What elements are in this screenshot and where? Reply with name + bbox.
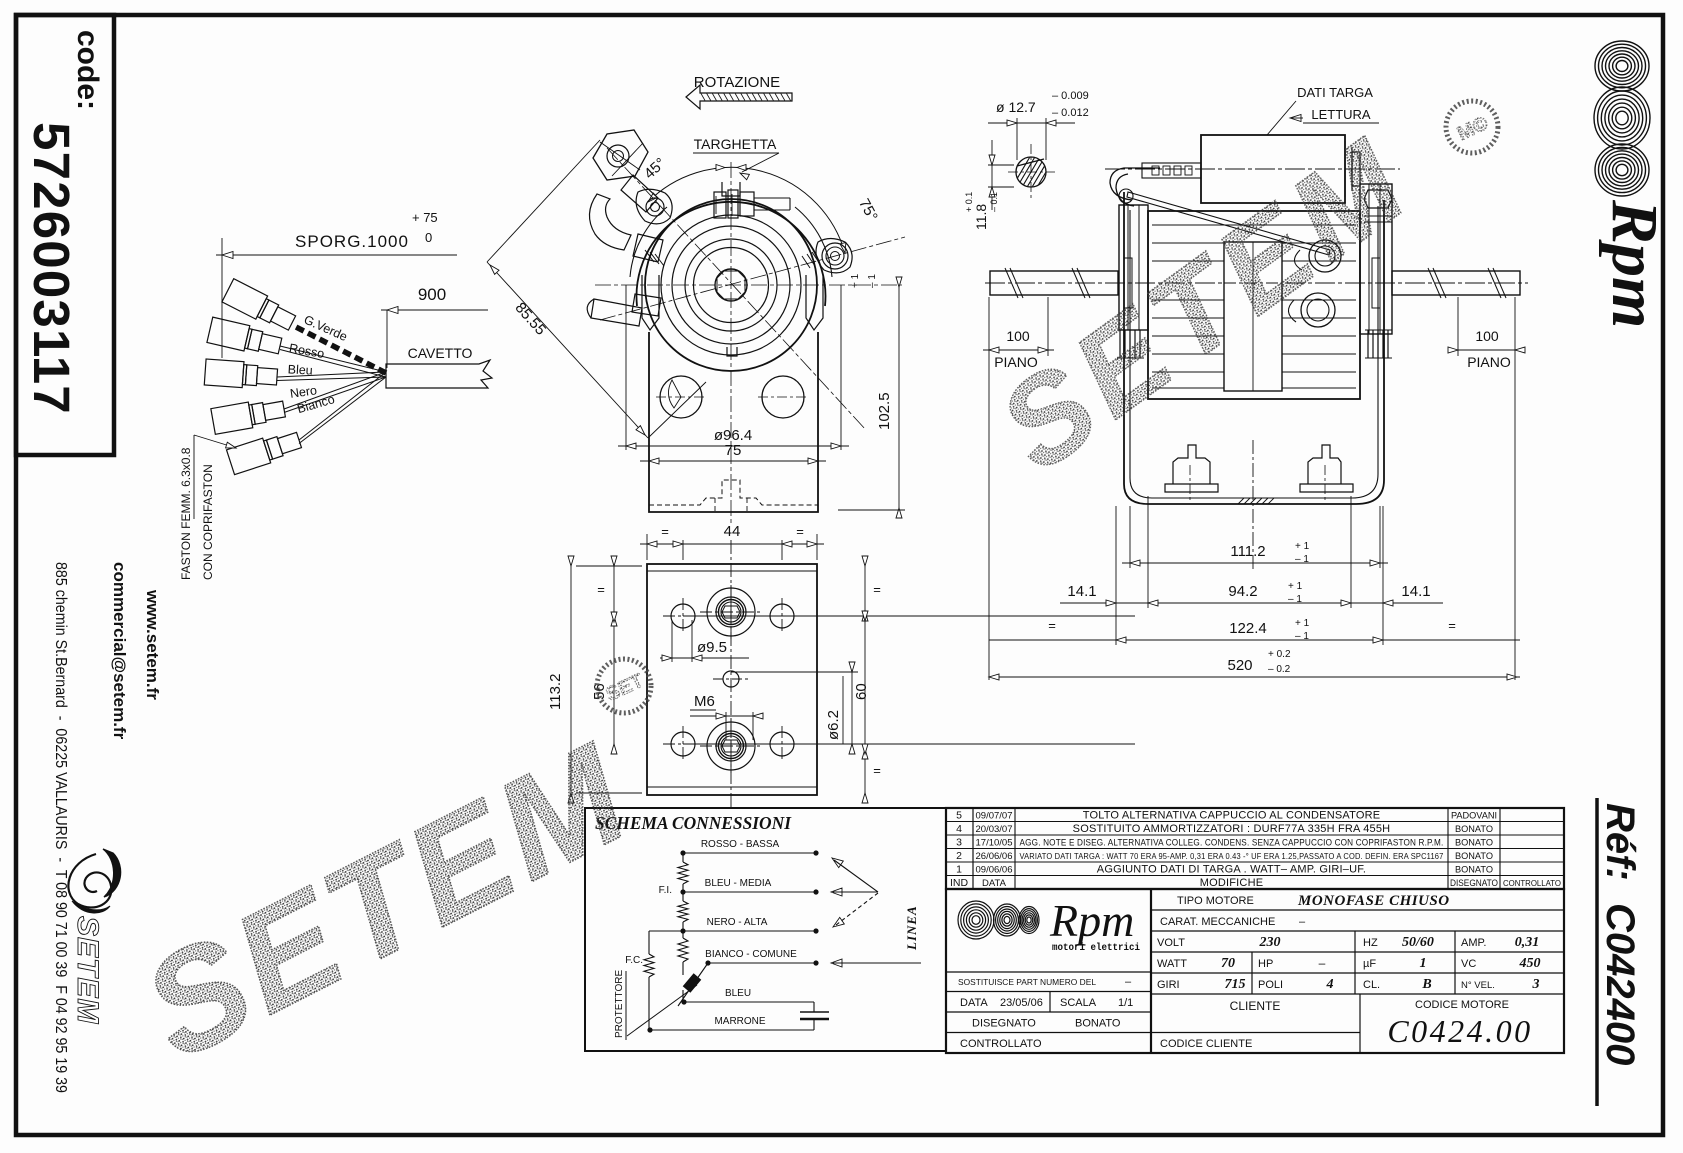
svg-text:DISEGNATO: DISEGNATO bbox=[1450, 878, 1498, 888]
svg-text:M6: M6 bbox=[694, 693, 715, 710]
svg-text:MARRONE: MARRONE bbox=[714, 1016, 765, 1027]
svg-text:122.4: 122.4 bbox=[1229, 620, 1267, 637]
svg-text:1/1: 1/1 bbox=[1118, 997, 1133, 1009]
svg-text:VOLT: VOLT bbox=[1157, 937, 1185, 949]
svg-text:AMP.: AMP. bbox=[1461, 937, 1486, 949]
svg-text:BONATO: BONATO bbox=[1455, 864, 1493, 874]
svg-text:CARAT. MECCANICHE: CARAT. MECCANICHE bbox=[1160, 916, 1275, 928]
svg-text:N° VEL.: N° VEL. bbox=[1461, 980, 1495, 991]
svg-text:102.5: 102.5 bbox=[876, 392, 893, 430]
svg-text:Rpm: Rpm bbox=[1049, 895, 1134, 946]
svg-text:HP: HP bbox=[1258, 958, 1273, 970]
svg-text:44: 44 bbox=[724, 523, 741, 540]
svg-text:DATI TARGA: DATI TARGA bbox=[1297, 85, 1373, 100]
svg-text:CLIENTE: CLIENTE bbox=[1230, 999, 1281, 1013]
svg-text:CODICE MOTORE: CODICE MOTORE bbox=[1415, 999, 1509, 1011]
svg-text:+ 1: + 1 bbox=[1288, 581, 1303, 592]
svg-text:–: – bbox=[1299, 916, 1306, 928]
svg-text:LINEA: LINEA bbox=[904, 905, 919, 951]
svg-text:–: – bbox=[1319, 956, 1326, 970]
svg-text:– 1: – 1 bbox=[1288, 594, 1302, 605]
svg-text:BONATO: BONATO bbox=[1455, 824, 1493, 834]
svg-text:23/05/06: 23/05/06 bbox=[1000, 997, 1043, 1009]
svg-text:C0424.00: C0424.00 bbox=[1387, 1013, 1532, 1049]
svg-text:3: 3 bbox=[956, 836, 962, 848]
svg-text:715: 715 bbox=[1225, 977, 1246, 992]
svg-text:TIPO MOTORE: TIPO MOTORE bbox=[1177, 895, 1254, 907]
svg-text:1: 1 bbox=[1420, 956, 1427, 971]
svg-text:code:: code: bbox=[71, 30, 104, 110]
svg-text:– 0.009: – 0.009 bbox=[1052, 90, 1089, 102]
svg-text:26/06/06: 26/06/06 bbox=[976, 851, 1013, 862]
svg-text:– 0.1: – 0.1 bbox=[989, 192, 999, 212]
svg-text:111.2: 111.2 bbox=[1230, 543, 1265, 560]
svg-text:3: 3 bbox=[1532, 977, 1540, 992]
svg-text:HZ: HZ bbox=[1363, 937, 1378, 949]
svg-text:µF: µF bbox=[1363, 958, 1376, 970]
svg-text:AGG. NOTE E DISEG. ALTERNATIVA: AGG. NOTE E DISEG. ALTERNATIVA COLLEG. C… bbox=[1020, 837, 1444, 848]
svg-text:BONATO: BONATO bbox=[1075, 1018, 1121, 1030]
svg-text:BIANCO - COMUNE: BIANCO - COMUNE bbox=[705, 949, 797, 960]
svg-text:– 1: – 1 bbox=[867, 274, 878, 288]
svg-text:F.C.: F.C. bbox=[625, 955, 643, 966]
svg-text:BLEU - MEDIA: BLEU - MEDIA bbox=[705, 878, 772, 889]
svg-text:60: 60 bbox=[853, 683, 870, 700]
svg-text:5726003117: 5726003117 bbox=[23, 122, 80, 415]
svg-text:FASTON FEMM. 6.3x0.8: FASTON FEMM. 6.3x0.8 bbox=[179, 447, 193, 580]
svg-text:GIRI: GIRI bbox=[1157, 979, 1180, 991]
svg-text:70: 70 bbox=[1221, 956, 1235, 971]
svg-text:IND: IND bbox=[950, 877, 969, 889]
svg-text:ø6.2: ø6.2 bbox=[825, 710, 842, 740]
svg-text:PROTETTORE: PROTETTORE bbox=[614, 970, 625, 1038]
svg-text:ø9.5: ø9.5 bbox=[697, 639, 727, 656]
svg-text:BONATO: BONATO bbox=[1455, 837, 1493, 847]
svg-text:motori elettrici: motori elettrici bbox=[1052, 942, 1140, 954]
svg-text:1: 1 bbox=[956, 863, 962, 875]
svg-text:14.1: 14.1 bbox=[1401, 583, 1430, 600]
svg-text:– 1: – 1 bbox=[1295, 554, 1309, 565]
svg-text:CONTROLLATO: CONTROLLATO bbox=[1503, 878, 1561, 888]
svg-text:SETEM: SETEM bbox=[71, 916, 104, 1024]
svg-text:MODIFICHE: MODIFICHE bbox=[1200, 877, 1264, 889]
svg-text:885 chemin St.Bernard - 0622: 885 chemin St.Bernard - 06225 VALLAURIS … bbox=[52, 562, 69, 1093]
svg-text:commercial@setem.fr: commercial@setem.fr bbox=[110, 562, 129, 740]
svg-text:www.setem.fr: www.setem.fr bbox=[143, 589, 162, 700]
svg-text:94.2: 94.2 bbox=[1228, 583, 1257, 600]
svg-text:CODICE CLIENTE: CODICE CLIENTE bbox=[1160, 1038, 1252, 1050]
svg-text:TOLTO ALTERNATIVA CAPPUCCIO AL: TOLTO ALTERNATIVA CAPPUCCIO AL CONDENSAT… bbox=[1083, 809, 1381, 821]
svg-text:–: – bbox=[1125, 976, 1132, 988]
svg-text:VC: VC bbox=[1461, 958, 1476, 970]
svg-text:=: = bbox=[873, 763, 881, 778]
svg-text:ROTAZIONE: ROTAZIONE bbox=[694, 74, 780, 91]
svg-text:+ 1: + 1 bbox=[1295, 618, 1310, 629]
svg-text:17/10/05: 17/10/05 bbox=[976, 837, 1013, 848]
svg-text:=: = bbox=[597, 582, 605, 597]
svg-text:DATA: DATA bbox=[960, 997, 988, 1009]
svg-text:=: = bbox=[1448, 618, 1456, 633]
svg-text:+ 75: + 75 bbox=[412, 210, 438, 225]
svg-text:=: = bbox=[873, 582, 881, 597]
svg-text:100: 100 bbox=[1006, 328, 1030, 344]
svg-text:113.2: 113.2 bbox=[547, 674, 564, 710]
svg-text:20/03/07: 20/03/07 bbox=[976, 824, 1013, 835]
svg-text:14.1: 14.1 bbox=[1067, 583, 1096, 600]
svg-text:MONOFASE CHIUSO: MONOFASE CHIUSO bbox=[1297, 893, 1450, 909]
svg-text:520: 520 bbox=[1227, 657, 1252, 674]
svg-text:VARIATO DATI TARGA : WATT 70 E: VARIATO DATI TARGA : WATT 70 ERA 95-AMP.… bbox=[1020, 852, 1444, 861]
svg-text:POLI: POLI bbox=[1258, 979, 1283, 991]
svg-text:SCALA: SCALA bbox=[1060, 997, 1097, 1009]
svg-text:NERO - ALTA: NERO - ALTA bbox=[707, 917, 768, 928]
svg-text:SOSTITUISCE PART NUMERO DEL: SOSTITUISCE PART NUMERO DEL bbox=[958, 977, 1096, 987]
svg-text:Bleu: Bleu bbox=[287, 362, 313, 377]
svg-text:09/06/06: 09/06/06 bbox=[976, 864, 1013, 875]
svg-text:CL.: CL. bbox=[1363, 979, 1380, 991]
svg-text:4: 4 bbox=[1326, 977, 1334, 992]
svg-text:Rpm: Rpm bbox=[1598, 199, 1671, 328]
svg-text:BONATO: BONATO bbox=[1455, 851, 1493, 861]
svg-text:F.I.: F.I. bbox=[659, 885, 672, 896]
svg-text:ROSSO - BASSA: ROSSO - BASSA bbox=[701, 839, 780, 850]
svg-text:5: 5 bbox=[956, 809, 962, 821]
svg-text:=: = bbox=[1048, 618, 1056, 633]
svg-text:CON COPRIFASTON: CON COPRIFASTON bbox=[201, 464, 215, 580]
svg-text:AGGIUNTO DATI DI TARGA . WATT–: AGGIUNTO DATI DI TARGA . WATT– AMP. GIRI… bbox=[1097, 863, 1366, 875]
svg-text:DATA: DATA bbox=[982, 878, 1007, 889]
svg-text:CAVETTO: CAVETTO bbox=[408, 345, 473, 361]
svg-text:75: 75 bbox=[725, 442, 742, 459]
svg-text:100: 100 bbox=[1475, 328, 1499, 344]
svg-text:4: 4 bbox=[956, 823, 962, 835]
svg-text:0: 0 bbox=[425, 230, 432, 245]
svg-text:WATT: WATT bbox=[1157, 958, 1187, 970]
svg-text:DISEGNATO: DISEGNATO bbox=[972, 1018, 1036, 1030]
svg-text:230: 230 bbox=[1259, 935, 1281, 950]
svg-text:SPORG.1000: SPORG.1000 bbox=[295, 232, 409, 251]
svg-text:+ 0.1: + 0.1 bbox=[964, 192, 974, 212]
svg-text:=: = bbox=[661, 524, 669, 539]
svg-text:+ 1: + 1 bbox=[850, 273, 861, 288]
svg-text:11.8: 11.8 bbox=[973, 204, 989, 230]
svg-text:+ 1: + 1 bbox=[1295, 541, 1310, 552]
svg-text:450: 450 bbox=[1519, 956, 1541, 971]
svg-text:=: = bbox=[796, 524, 804, 539]
svg-text:+ 0.2: + 0.2 bbox=[1268, 649, 1291, 660]
svg-text:SOSTITUITO AMMORTIZZATORI : DU: SOSTITUITO AMMORTIZZATORI : DURF77A 335H… bbox=[1073, 823, 1391, 835]
svg-text:0,31: 0,31 bbox=[1515, 935, 1540, 950]
svg-text:B: B bbox=[1421, 977, 1431, 992]
svg-text:50/60: 50/60 bbox=[1402, 935, 1434, 950]
svg-text:09/07/07: 09/07/07 bbox=[976, 810, 1013, 821]
svg-text:900: 900 bbox=[418, 285, 446, 304]
svg-text:ø 12.7: ø 12.7 bbox=[996, 99, 1036, 115]
svg-text:PADOVANI: PADOVANI bbox=[1451, 810, 1497, 820]
svg-text:– 0.012: – 0.012 bbox=[1052, 107, 1089, 119]
svg-text:CONTROLLATO: CONTROLLATO bbox=[960, 1038, 1042, 1050]
svg-text:– 1: – 1 bbox=[1295, 631, 1309, 642]
svg-text:– 0.2: – 0.2 bbox=[1268, 664, 1291, 675]
svg-text:PIANO: PIANO bbox=[1467, 354, 1511, 370]
svg-text:BLEU: BLEU bbox=[725, 988, 751, 999]
svg-text:2: 2 bbox=[956, 850, 962, 862]
svg-text:Réf: C042400: Réf: C042400 bbox=[1598, 803, 1642, 1065]
svg-text:TARGHETTA: TARGHETTA bbox=[694, 136, 777, 152]
